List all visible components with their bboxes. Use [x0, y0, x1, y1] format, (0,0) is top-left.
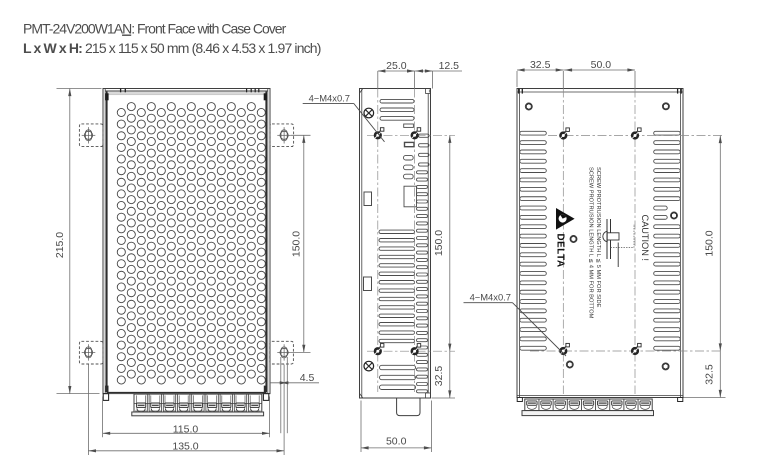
svg-text:SCREW PROTRUSION LENGTH L ≦ 4: SCREW PROTRUSION LENGTH L ≦ 4 MM FOR BOT… [588, 167, 594, 319]
svg-text:135.0: 135.0 [172, 440, 198, 452]
svg-text:150.0: 150.0 [704, 230, 716, 256]
svg-text:32.5: 32.5 [433, 366, 445, 387]
svg-text:L x W x H: 215 x 115 x 50 mm (: L x W x H: 215 x 115 x 50 mm (8.46 x 4.5… [23, 40, 321, 56]
svg-text:4−M4x0.7: 4−M4x0.7 [470, 292, 511, 303]
svg-text:12.5: 12.5 [439, 60, 460, 72]
svg-text:150.0: 150.0 [291, 231, 303, 257]
svg-text:DELTA: DELTA [554, 234, 565, 268]
svg-text:PMT-24V200W1AN: Front Face wit: PMT-24V200W1AN: Front Face with Case Cov… [23, 21, 287, 37]
svg-text:32.5: 32.5 [704, 364, 716, 385]
svg-text:215.0: 215.0 [54, 232, 66, 258]
svg-text:150.0: 150.0 [433, 230, 445, 256]
svg-text:4−M4x0.7: 4−M4x0.7 [309, 92, 350, 103]
svg-text:115.0: 115.0 [173, 423, 199, 435]
svg-text:4.5: 4.5 [300, 372, 315, 384]
svg-text:50.0: 50.0 [386, 436, 407, 448]
svg-text:25.0: 25.0 [386, 60, 407, 72]
svg-text:SCREW PROTRUSION LENGTH L ≦ 5: SCREW PROTRUSION LENGTH L ≦ 5 MM FOR SID… [595, 167, 601, 308]
svg-text:32.5: 32.5 [530, 59, 551, 71]
svg-text:CAUTION !: CAUTION ! [640, 215, 650, 261]
svg-text:50.0: 50.0 [591, 59, 612, 71]
